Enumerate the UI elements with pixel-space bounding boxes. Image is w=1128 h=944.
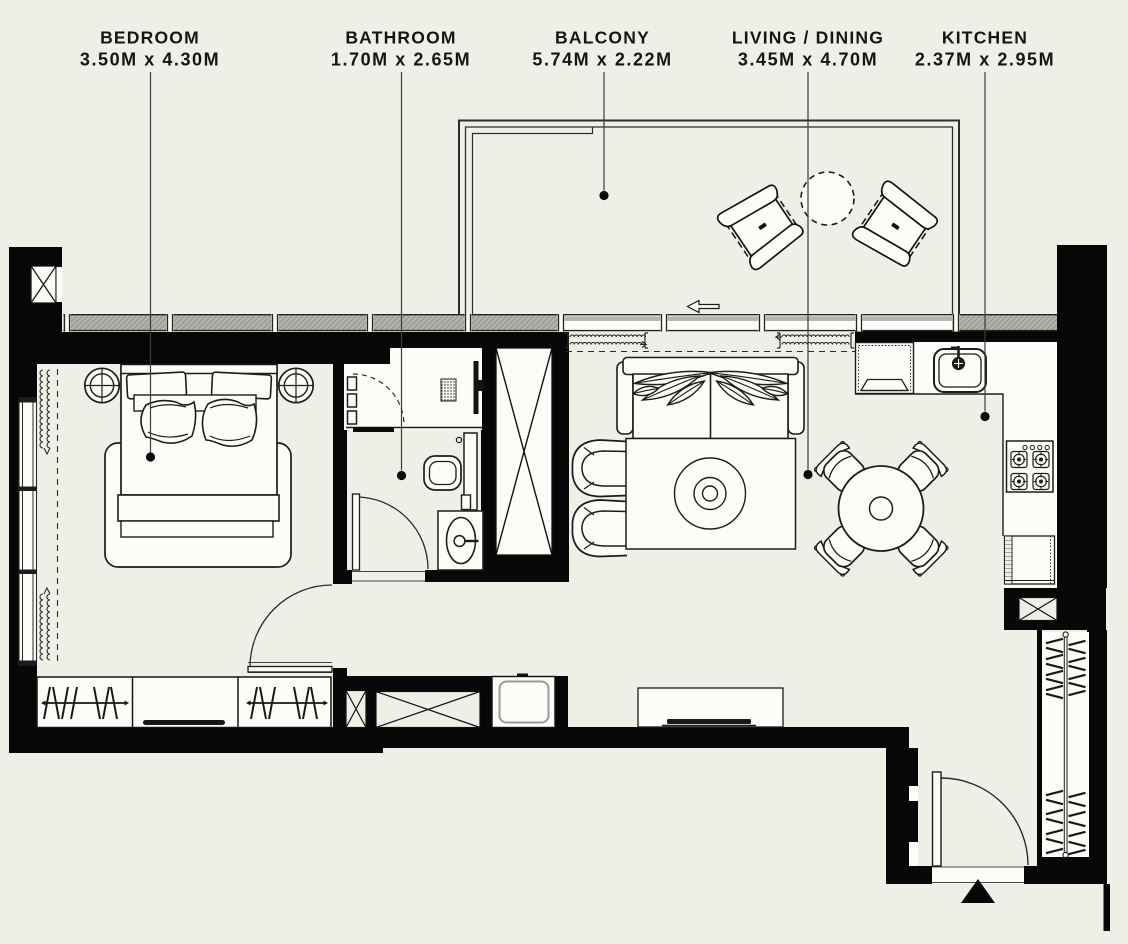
svg-text:1.70M x 2.65M: 1.70M x 2.65M xyxy=(331,50,471,70)
svg-text:BEDROOM: BEDROOM xyxy=(100,28,200,48)
svg-text:3.50M x 4.30M: 3.50M x 4.30M xyxy=(80,50,220,70)
svg-text:2.37M x 2.95M: 2.37M x 2.95M xyxy=(915,50,1055,70)
svg-text:5.74M x 2.22M: 5.74M x 2.22M xyxy=(532,50,672,70)
svg-text:3.45M x 4.70M: 3.45M x 4.70M xyxy=(738,50,878,70)
svg-text:BALCONY: BALCONY xyxy=(555,28,650,48)
svg-text:KITCHEN: KITCHEN xyxy=(942,28,1028,48)
svg-text:LIVING / DINING: LIVING / DINING xyxy=(732,28,884,48)
svg-text:BATHROOM: BATHROOM xyxy=(345,28,456,48)
